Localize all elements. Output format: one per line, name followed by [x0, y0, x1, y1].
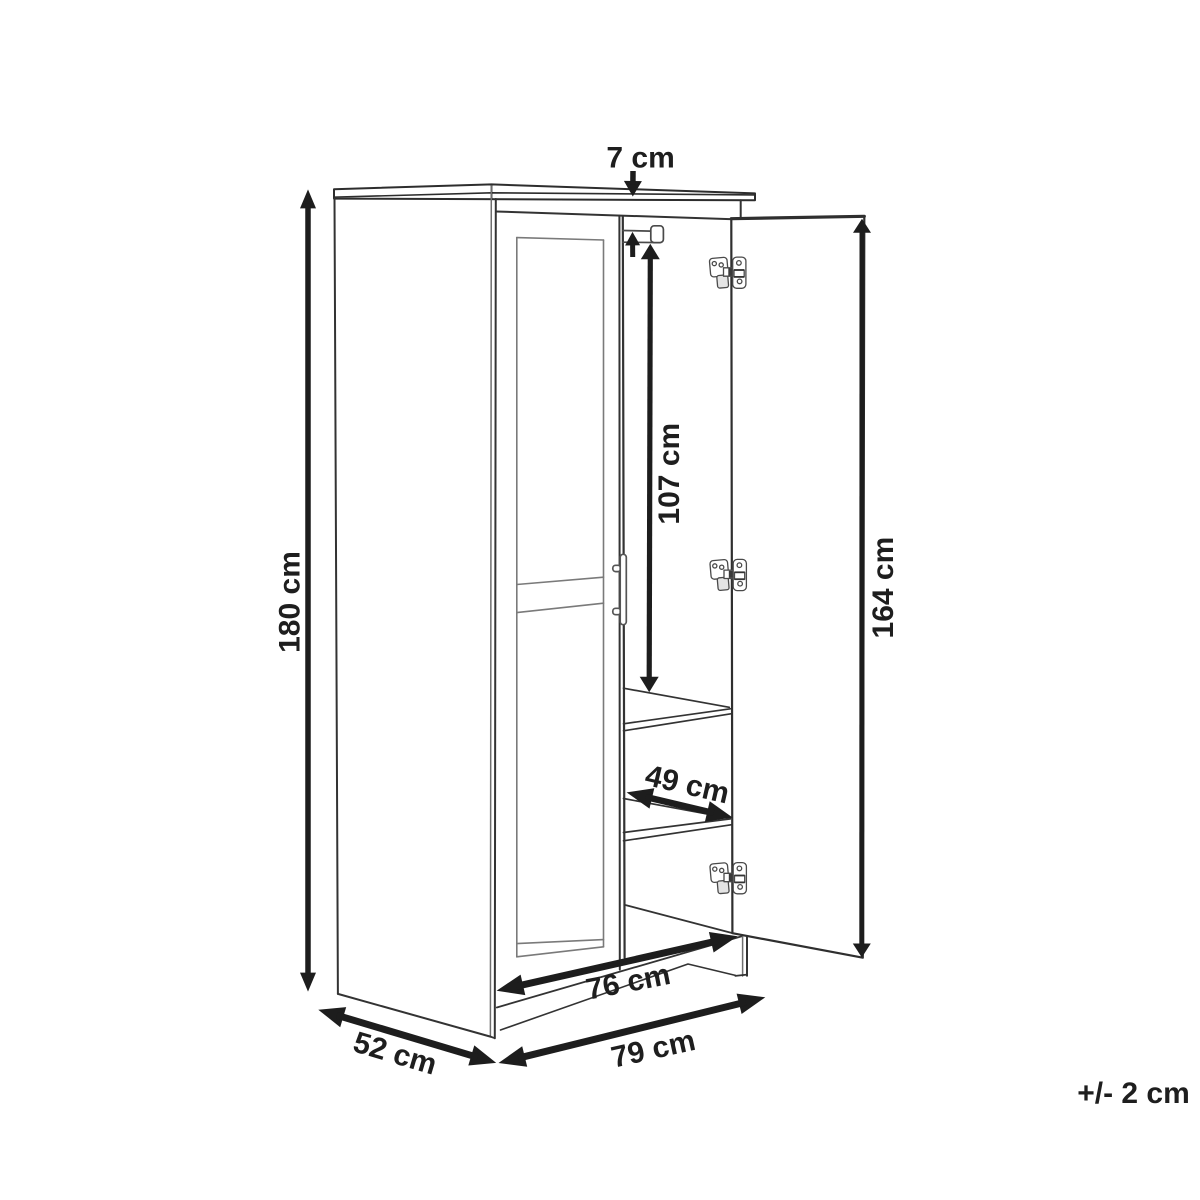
svg-text:180 cm: 180 cm: [273, 551, 306, 653]
svg-text:107 cm: 107 cm: [653, 423, 686, 525]
svg-text:+/- 2 cm: +/- 2 cm: [1077, 1077, 1190, 1110]
svg-text:164 cm: 164 cm: [867, 537, 900, 639]
svg-text:7 cm: 7 cm: [606, 141, 674, 174]
